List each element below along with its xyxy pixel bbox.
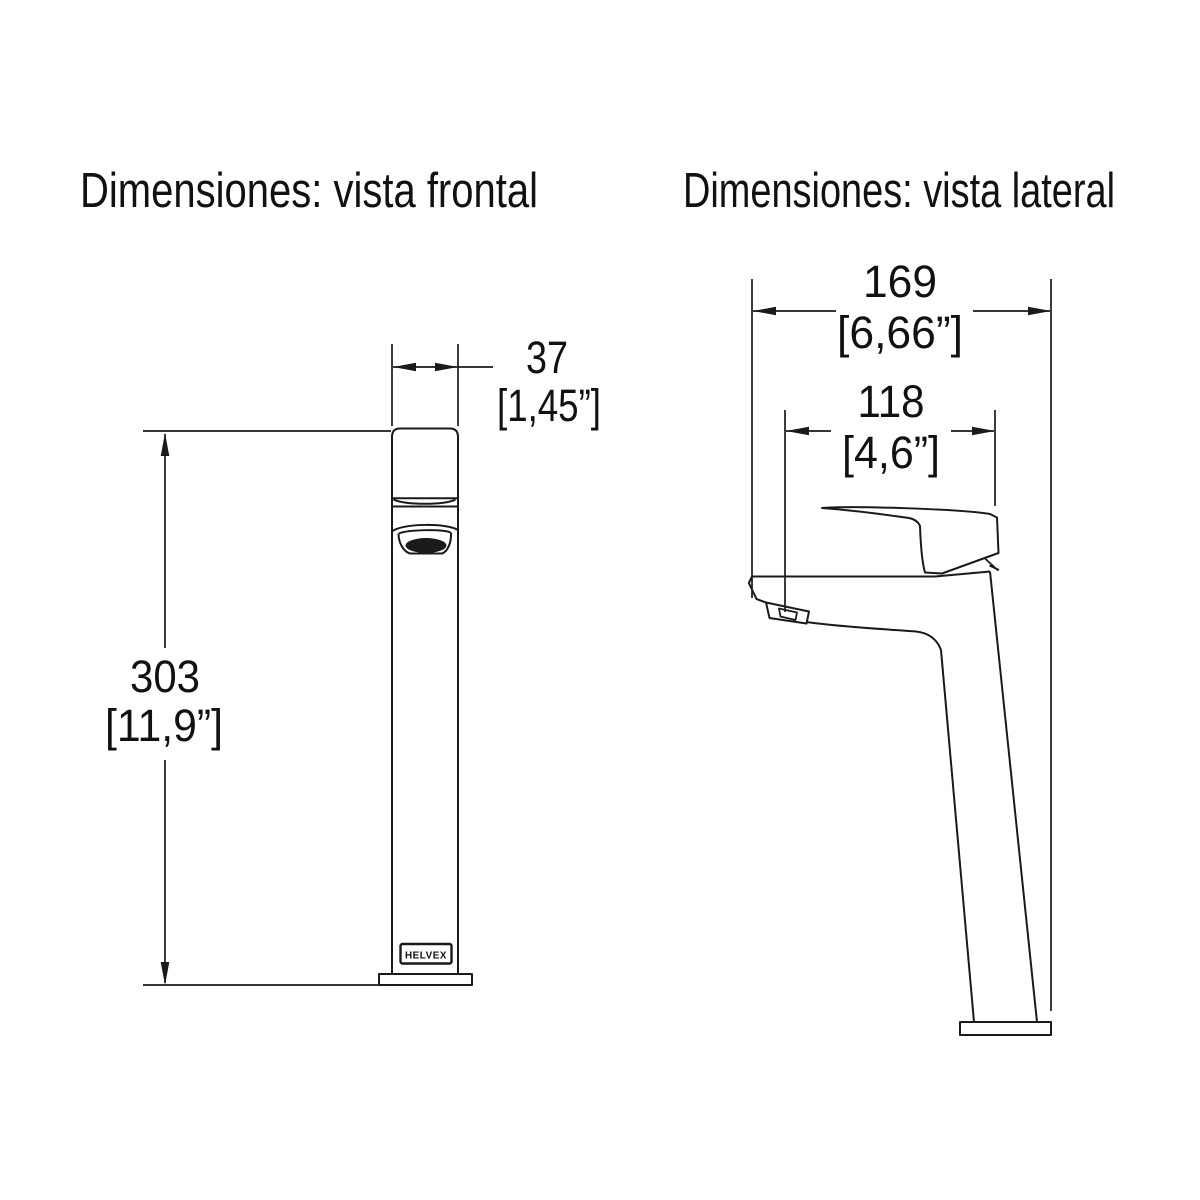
faucet-dimension-diagram: Dimensiones: vista frontal HELVEX <box>0 0 1200 1200</box>
dimension-arrowhead-down-icon <box>161 962 170 985</box>
column-back-edge <box>990 572 1037 1023</box>
technical-drawing-page: Dimensiones: vista frontal HELVEX <box>0 0 1200 1200</box>
reach-value-mm: 118 <box>858 376 925 427</box>
dimension-arrowhead-left-icon <box>786 427 809 435</box>
faucet-front-base <box>379 974 472 985</box>
front-faucet-drawing: HELVEX <box>379 429 472 986</box>
width-value-inches: [1,45”] <box>497 380 601 431</box>
front-width-dimension: 37 [1,45”] <box>392 332 601 431</box>
front-view: Dimensiones: vista frontal HELVEX <box>80 164 601 985</box>
side-faucet-drawing <box>749 507 1051 1035</box>
lateral-view: Dimensiones: vista lateral <box>683 164 1115 1035</box>
height-value-inches: [11,9”] <box>105 700 223 751</box>
height-value-mm: 303 <box>130 651 200 702</box>
handle-pivot-lines <box>985 559 999 571</box>
column-front-edge <box>941 650 974 1022</box>
deck-top-line <box>752 572 990 577</box>
dimension-arrowhead-left-icon <box>393 363 416 371</box>
width-value-mm: 37 <box>526 332 568 383</box>
front-height-dimension: 303 [11,9”] <box>105 431 391 985</box>
faucet-side-base <box>960 1022 1051 1035</box>
aerator-side-outer <box>766 603 809 624</box>
dimension-arrowhead-right-icon <box>1028 307 1051 315</box>
dimension-arrowhead-left-icon <box>753 307 776 315</box>
dimension-arrowhead-up-icon <box>161 433 170 456</box>
aerator-outlet <box>406 538 447 553</box>
handle-side-outline <box>822 507 999 573</box>
helvex-logo-text: HELVEX <box>405 950 447 962</box>
faucet-front-body-outline <box>392 429 458 975</box>
dimension-arrowhead-right-icon <box>435 363 458 371</box>
dimension-arrowhead-right-icon <box>972 427 995 435</box>
depth-dimension: 169 [6,66”] <box>752 256 1051 1011</box>
front-view-title: Dimensiones: vista frontal <box>80 164 538 218</box>
depth-value-inches: [6,66”] <box>837 307 963 358</box>
spout-underside-line <box>807 622 942 650</box>
helvex-logo-badge: HELVEX <box>401 944 452 964</box>
lateral-view-title: Dimensiones: vista lateral <box>683 164 1115 218</box>
reach-value-inches: [4,6”] <box>842 427 940 478</box>
depth-value-mm: 169 <box>863 256 937 307</box>
